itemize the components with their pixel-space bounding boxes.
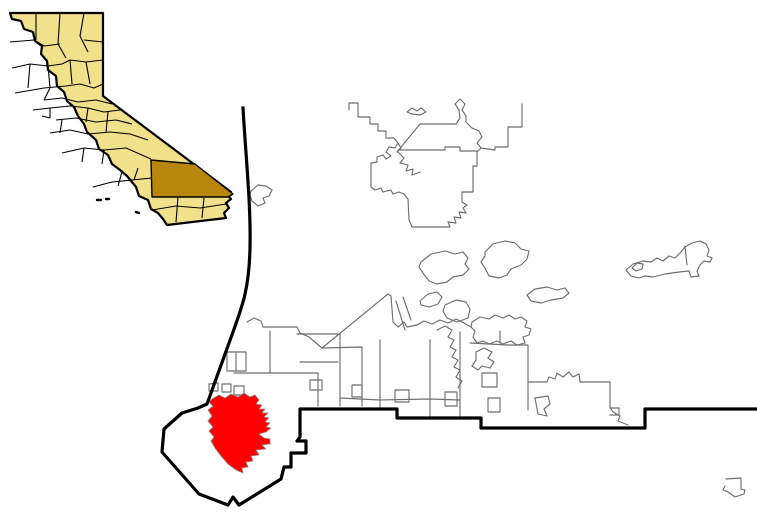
city-boundary [340, 332, 460, 417]
city-boundary [420, 292, 442, 307]
city-boundary [407, 108, 426, 115]
city-boundary [437, 326, 462, 388]
city-boundary [723, 478, 745, 497]
highlighted-city-shape [208, 393, 271, 473]
city-boundary [527, 287, 569, 303]
city-boundary [349, 99, 482, 227]
city-boundary [626, 241, 712, 278]
city-boundary [247, 294, 417, 348]
highlighted-county-shape [151, 160, 233, 197]
city-boundary [250, 185, 272, 206]
city-boundary [481, 241, 529, 278]
city-boundary [472, 348, 494, 370]
city-boundaries-group [209, 99, 745, 497]
city-boundary [482, 373, 497, 387]
locator-map-image [0, 0, 757, 512]
city-boundary [398, 147, 477, 151]
city-boundary [470, 331, 628, 425]
main-county-map [162, 99, 757, 505]
locator-map-screenshot [0, 0, 757, 512]
city-boundary [396, 297, 411, 330]
city-boundary [481, 104, 522, 150]
city-boundary [685, 246, 687, 265]
city-boundary [227, 352, 246, 371]
channel-islands [97, 199, 139, 213]
city-boundary [471, 315, 531, 345]
city-boundary [398, 152, 420, 175]
city-boundary [419, 251, 469, 284]
california-inset [10, 13, 233, 225]
city-boundary [234, 331, 362, 406]
